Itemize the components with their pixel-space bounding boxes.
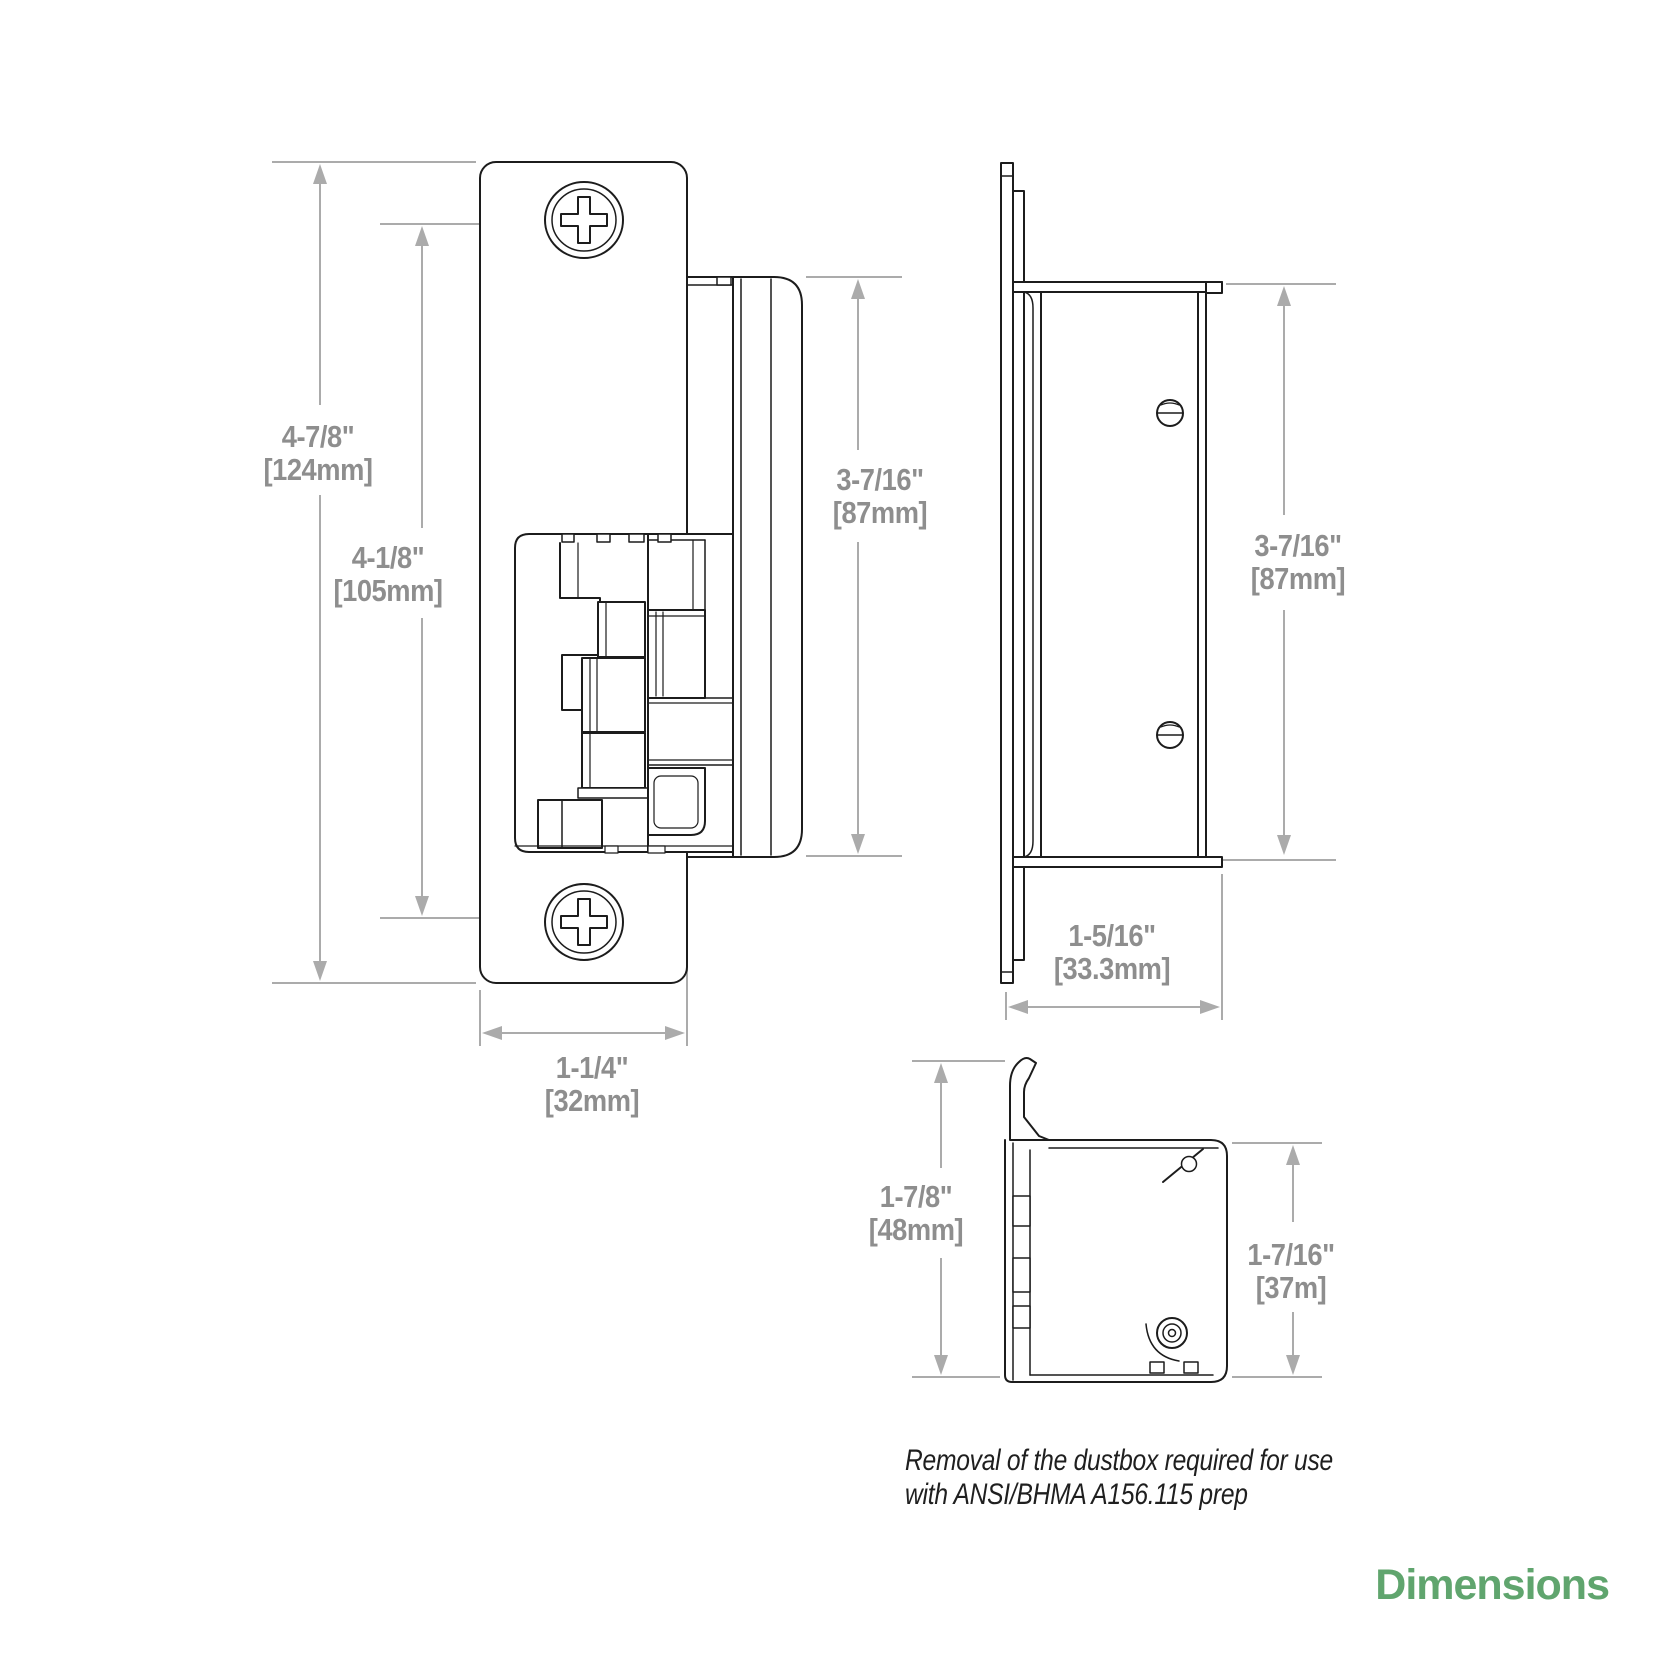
faceplate-edge — [1001, 163, 1013, 983]
screw-icon — [1157, 722, 1183, 748]
technical-drawing — [0, 0, 1667, 1667]
dim-inch-value: 3-7/16" — [836, 463, 923, 496]
dim-inch-value: 4-1/8" — [352, 541, 424, 574]
strike-body-front — [733, 277, 802, 857]
dim-label-top-body-depth: 1-7/16" [37m] — [1247, 1238, 1334, 1304]
dim-inch-value: 1-7/16" — [1247, 1238, 1334, 1271]
dim-label-front-body-height: 3-7/16" [87mm] — [833, 463, 927, 529]
side-view-group — [1001, 163, 1222, 983]
keeper-lip-hook — [1010, 1058, 1049, 1140]
dim-mm-value: [48mm] — [869, 1213, 963, 1246]
screw-icon — [1157, 400, 1183, 426]
dim-label-front-overall-height: 4-7/8" [124mm] — [263, 420, 372, 486]
dim-inch-value: 3-7/16" — [1254, 529, 1341, 562]
dim-mm-value: [87mm] — [1251, 562, 1345, 595]
dim-inch-value: 4-7/8" — [282, 420, 354, 453]
dim-mm-value: [124mm] — [263, 453, 372, 486]
dustbox-note: Removal of the dustbox required for use … — [905, 1444, 1333, 1512]
dim-inch-value: 1-1/4" — [556, 1051, 628, 1084]
dim-label-front-screw-spacing: 4-1/8" [105mm] — [333, 541, 442, 607]
strike-body-top — [1005, 1140, 1227, 1382]
dim-label-side-body-height: 3-7/16" [87mm] — [1251, 529, 1345, 595]
note-line-1: Removal of the dustbox required for use — [905, 1444, 1333, 1478]
keeper-mechanism — [515, 534, 733, 853]
dim-inch-value: 1-5/16" — [1068, 919, 1155, 952]
dim-mm-value: [87mm] — [833, 496, 927, 529]
dim-inch-value: 1-7/8" — [880, 1180, 952, 1213]
screw-icon — [545, 182, 623, 258]
dim-mm-value: [33.3mm] — [1054, 952, 1170, 985]
strike-body-side — [1041, 292, 1198, 857]
dim-label-side-depth: 1-5/16" [33.3mm] — [1054, 919, 1170, 985]
dim-mm-value: [32mm] — [545, 1084, 639, 1117]
front-view-group — [480, 162, 802, 983]
dim-mm-value: [105mm] — [333, 574, 442, 607]
dim-label-front-faceplate-width: 1-1/4" [32mm] — [545, 1051, 639, 1117]
note-line-2: with ANSI/BHMA A156.115 prep — [905, 1478, 1333, 1512]
top-view-group — [1005, 1058, 1227, 1382]
dim-label-top-overall-depth: 1-7/8" [48mm] — [869, 1180, 963, 1246]
dim-mm-value: [37m] — [1256, 1271, 1327, 1304]
page-title: Dimensions — [1375, 1564, 1609, 1607]
screw-icon — [545, 884, 623, 960]
electric-strike-dimensions-diagram: 4-7/8" [124mm] 4-1/8" [105mm] 3-7/16" [8… — [0, 0, 1667, 1667]
